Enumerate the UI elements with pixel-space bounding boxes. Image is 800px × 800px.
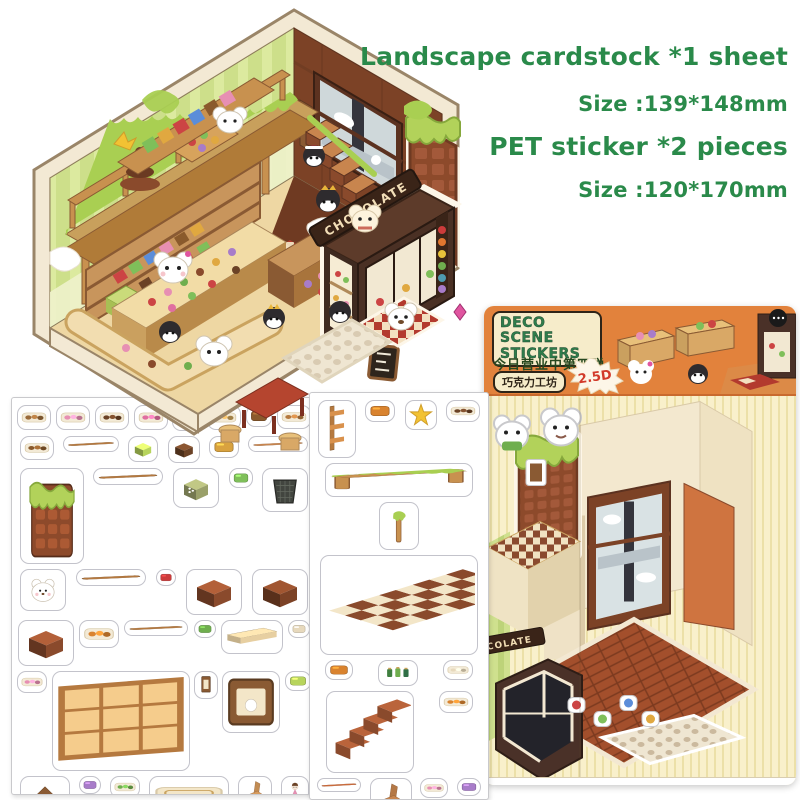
sticker-tray xyxy=(79,620,119,648)
sticker-blob xyxy=(79,776,101,794)
sticker-tray xyxy=(443,660,473,680)
package-room-scene: CHOCOLATE xyxy=(484,394,796,785)
info-line-cardstock: Landscape cardstock *1 sheet xyxy=(360,42,788,71)
sticker-plank xyxy=(124,620,188,636)
pkg-window xyxy=(588,482,670,630)
sticker-basket xyxy=(262,468,308,512)
pkg-kiosk xyxy=(496,660,582,780)
sticker-chair xyxy=(370,778,412,800)
sticker-register xyxy=(173,468,219,508)
mini-penguin xyxy=(688,364,708,384)
pkg-frame-sticker xyxy=(526,460,546,486)
sticker-railpost xyxy=(379,502,419,550)
candy-dispenser xyxy=(436,211,448,299)
sticker-rug xyxy=(149,776,229,795)
package-body: CHOCOLATE xyxy=(484,394,796,785)
package-header: DECO SCENE STICKERS 今日营业中第四弹 巧克力工坊 2.5D xyxy=(484,306,796,396)
pkg-dog-sticker-2 xyxy=(541,409,581,446)
sticker-tray xyxy=(420,778,448,798)
sticker-cube xyxy=(186,569,242,615)
sticker-stairs xyxy=(326,691,414,773)
sticker-blob xyxy=(288,620,310,638)
sticker-blob xyxy=(156,569,176,586)
package-card-edge xyxy=(484,777,796,785)
sticker-doll xyxy=(281,776,309,795)
pkg-dog-sticker-1 xyxy=(494,416,530,451)
sticker-chair xyxy=(238,776,272,795)
sticker-tray xyxy=(110,776,140,795)
sticker-cube xyxy=(18,620,74,666)
sticker-blob xyxy=(229,468,253,488)
sticker-tray xyxy=(17,671,47,693)
sticker-plank xyxy=(76,569,146,586)
sticker-tray xyxy=(439,691,473,713)
sticker-blob xyxy=(194,620,216,638)
sticker-house xyxy=(20,776,70,795)
sticker-frame xyxy=(194,671,218,699)
sticker-shelfgrid xyxy=(52,671,190,771)
sticker-blob xyxy=(457,778,481,796)
sticker-bottles xyxy=(378,660,418,686)
sticker-cube xyxy=(252,569,308,615)
package: DECO SCENE STICKERS 今日营业中第四弹 巧克力工坊 2.5D xyxy=(484,306,796,785)
product-image: CHOCOLATE xyxy=(0,0,800,800)
package-tag: 巧克力工坊 xyxy=(493,371,566,393)
sticker-checker xyxy=(320,555,478,655)
package-header-scene xyxy=(610,306,796,394)
sticker-blob xyxy=(285,671,311,691)
sticker-bench xyxy=(221,620,283,654)
info-line-cardstock-size: Size :139*148mm xyxy=(360,92,788,116)
penguin-counter xyxy=(159,321,181,343)
product-info: Landscape cardstock *1 sheet Size :139*1… xyxy=(360,42,788,202)
sticker-dog xyxy=(20,569,66,611)
penguin-kiosk xyxy=(329,301,351,323)
package-title-line1: DECO SCENE xyxy=(500,316,594,347)
info-line-sticker: PET sticker *2 pieces xyxy=(360,132,788,161)
penguin-stairs xyxy=(303,145,325,167)
info-line-sticker-size: Size :120*170mm xyxy=(360,178,788,202)
sticker-blob xyxy=(325,660,353,680)
sticker-plank xyxy=(317,778,361,792)
sticker-railing xyxy=(325,463,473,497)
sticker-plank xyxy=(93,468,163,485)
sticker-cabinet xyxy=(222,671,280,733)
sticker-chocbar xyxy=(20,468,84,564)
